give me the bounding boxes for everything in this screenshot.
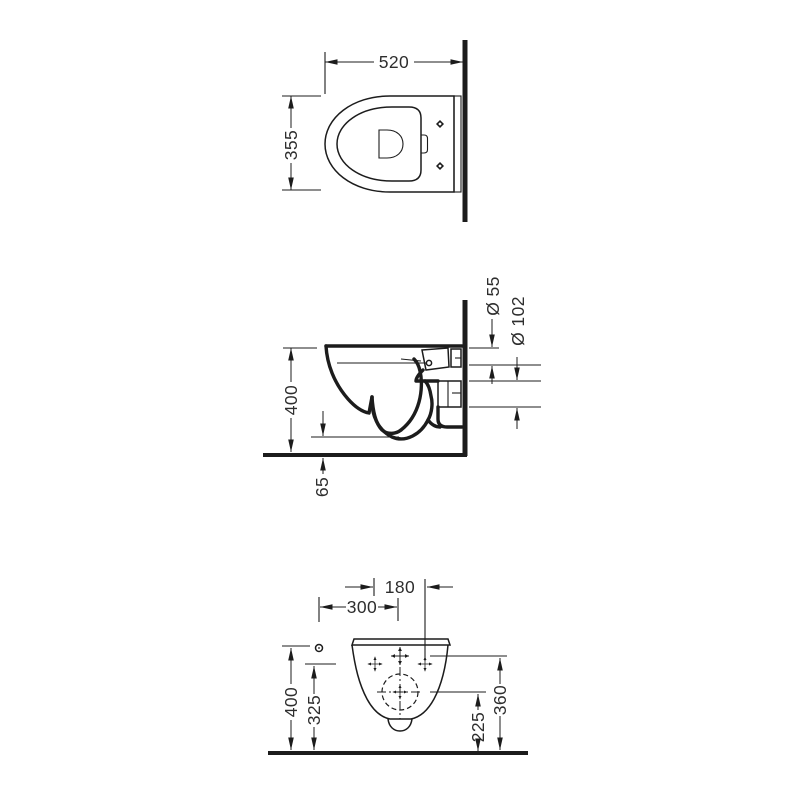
technical-drawing: 520 355 — [0, 0, 800, 800]
front-view: 180 300 — [268, 577, 528, 753]
dim-label-side-fixing: 300 — [347, 597, 377, 617]
dim-inlet-diameter: Ø 55 — [483, 276, 503, 384]
dim-label-fixing-height: 325 — [304, 695, 324, 725]
dim-label-clearance: 65 — [312, 477, 332, 497]
dim-label-depth: 355 — [281, 130, 301, 160]
drawing-canvas: 520 355 — [0, 0, 800, 800]
pipe-leader-lines — [469, 348, 541, 407]
toilet-top-outline — [325, 96, 461, 192]
dim-width-520: 520 — [325, 52, 463, 94]
dim-depth-355: 355 — [281, 96, 321, 190]
mounting-strip — [454, 96, 461, 192]
outlet-box — [438, 381, 461, 407]
dim-label-width: 520 — [379, 52, 409, 72]
dim-fixing-height-325: 325 — [304, 664, 336, 750]
dim-outlet-height-225: 225 — [430, 692, 488, 751]
dim-label-height: 400 — [281, 687, 301, 717]
fixing-hole-marker — [436, 120, 444, 128]
fixing-hole-marker — [368, 657, 382, 671]
toilet-section — [326, 346, 462, 439]
outlet-bump — [388, 719, 412, 731]
bowl-front — [326, 346, 372, 413]
hinge-cover — [379, 130, 403, 158]
dim-label-outlet-height: 225 — [468, 712, 488, 742]
fixing-hole-marker — [436, 162, 444, 170]
dim-side-fixing-300: 300 — [319, 597, 398, 622]
top-view: 520 355 — [281, 40, 465, 222]
dim-label-height: 400 — [281, 385, 301, 415]
dim-hole-spacing-180: 180 — [345, 577, 453, 661]
trap-curve — [401, 359, 421, 430]
dim-label-inlet-height: 360 — [490, 685, 510, 715]
rear-step — [416, 370, 438, 381]
rear-bracket — [438, 407, 462, 427]
inlet-hole — [426, 360, 431, 365]
top-band — [352, 639, 450, 645]
dim-outlet-diameter: Ø 102 — [508, 296, 528, 429]
toilet-front-outline — [316, 639, 451, 731]
dim-label-inlet-diameter: Ø 55 — [483, 276, 503, 316]
inlet-position-marker — [391, 647, 409, 665]
inlet-box — [422, 348, 449, 370]
dim-height-400: 400 — [281, 348, 317, 452]
fixing-hole-marker — [418, 657, 432, 671]
side-view: 400 65 — [263, 276, 541, 497]
dim-label-hole-spacing: 180 — [385, 577, 415, 597]
dim-label-outlet-diameter: Ø 102 — [508, 296, 528, 346]
bowl-inner — [372, 397, 401, 433]
inlet-leader — [401, 359, 421, 361]
seat-hinge-notch — [421, 135, 428, 153]
